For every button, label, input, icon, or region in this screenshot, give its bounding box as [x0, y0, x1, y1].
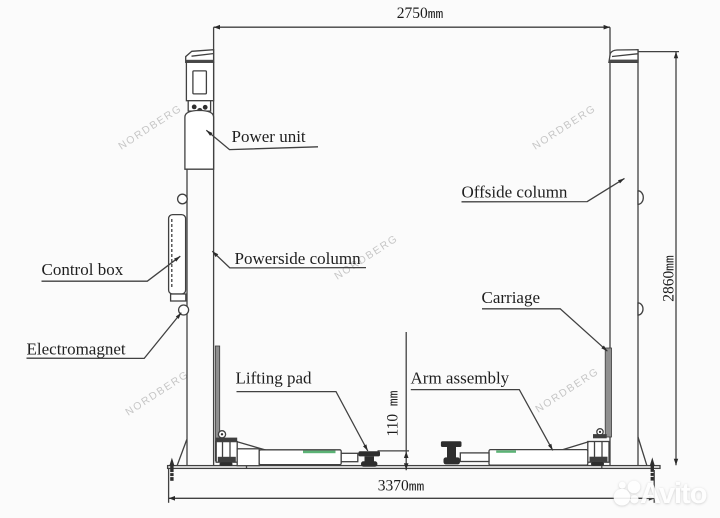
svg-text:Offside column: Offside column	[462, 183, 568, 202]
svg-text:Carriage: Carriage	[482, 288, 541, 307]
svg-text:Arm assembly: Arm assembly	[411, 368, 510, 387]
svg-text:3370mm: 3370mm	[378, 478, 425, 495]
svg-text:2750mm: 2750mm	[397, 5, 444, 22]
svg-text:Power unit: Power unit	[232, 127, 306, 146]
svg-text:Lifting pad: Lifting pad	[236, 369, 313, 388]
svg-text:Powerside column: Powerside column	[235, 249, 362, 268]
svg-text:Control box: Control box	[42, 260, 124, 279]
svg-text:110 mm: 110 mm	[385, 390, 402, 436]
svg-text:2860mm: 2860mm	[661, 255, 678, 302]
svg-text:Electromagnet: Electromagnet	[27, 340, 126, 359]
svg-text:Avito: Avito	[640, 478, 707, 510]
